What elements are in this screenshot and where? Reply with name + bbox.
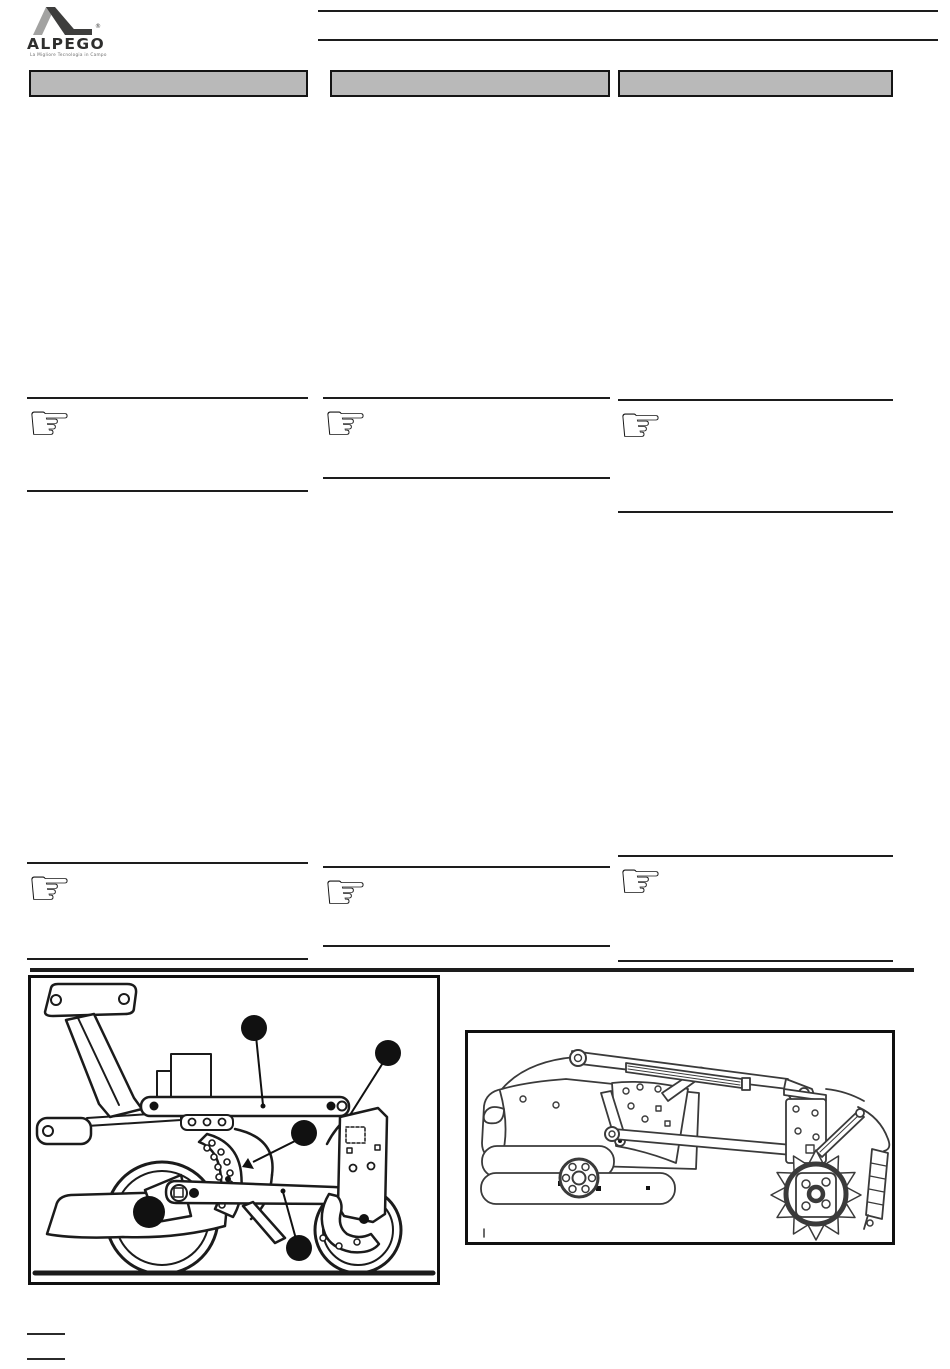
section-divider (30, 968, 914, 972)
note-block-left-1: ☞ (27, 397, 308, 492)
alpego-mountain-icon (31, 4, 93, 37)
pointing-hand-icon: ☞ (27, 401, 72, 446)
footer-rule-1 (27, 1333, 65, 1335)
note-block-right-1: ☞ (618, 399, 893, 513)
brand-name: ALPEGO (27, 35, 105, 53)
note-block-center-1: ☞ (323, 397, 610, 479)
note-block-center-2: ☞ (323, 866, 610, 947)
note-block-left-2: ☞ (27, 862, 308, 960)
right-figure-drawing (468, 1033, 892, 1242)
pointing-hand-icon: ☞ (323, 870, 368, 915)
section-bar-right (618, 70, 893, 97)
brand-tagline: La Migliore Tecnologia in Campo (30, 52, 107, 57)
brand-logo: ALPEGO ® La Migliore Tecnologia in Campo (0, 0, 120, 60)
figure-right-machine-side (465, 1030, 895, 1245)
manual-page: ALPEGO ® La Migliore Tecnologia in Campo… (0, 0, 950, 1369)
figure-left-seed-unit (28, 975, 440, 1285)
pointing-hand-icon: ☞ (618, 403, 663, 448)
callout-marker-1 (241, 1015, 267, 1041)
pointing-hand-icon: ☞ (27, 866, 72, 911)
left-figure-drawing (31, 978, 437, 1282)
pointing-hand-icon: ☞ (323, 401, 368, 446)
footer-rule-2 (27, 1358, 65, 1360)
section-bar-center (330, 70, 610, 97)
callout-marker-2 (375, 1040, 401, 1066)
callout-marker-5 (286, 1235, 312, 1261)
note-block-right-2: ☞ (618, 855, 893, 962)
registered-mark: ® (95, 23, 101, 30)
header-rule-top (318, 10, 938, 12)
callout-marker-3 (291, 1120, 317, 1146)
pointing-hand-icon: ☞ (618, 859, 663, 904)
header-rule-bottom (318, 39, 938, 41)
callout-marker-4 (133, 1196, 165, 1228)
section-bar-left (29, 70, 308, 97)
